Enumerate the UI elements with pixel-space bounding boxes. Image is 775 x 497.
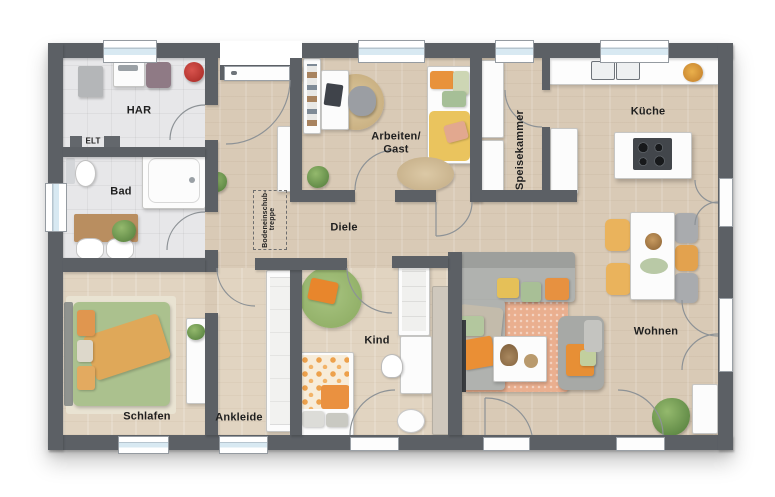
window-ankleide [219, 436, 268, 454]
table-centerpiece [645, 233, 662, 250]
label-ankleide: Ankleide [215, 412, 262, 425]
pillow [430, 71, 455, 89]
kind-shelf [398, 264, 430, 336]
shelf-books [307, 64, 317, 126]
laundry-basket [146, 62, 171, 88]
label-arbeiten-line2: Gast [371, 143, 420, 156]
pillow [326, 413, 348, 427]
door-handle [231, 71, 237, 75]
terrace-door-kind [350, 437, 399, 451]
kind-side-table [397, 409, 425, 433]
wall-speisekammer-kueche-a [542, 58, 550, 90]
window-schlafen [118, 436, 169, 454]
window-speisekammer [495, 40, 534, 63]
dining-chair-orange [606, 263, 631, 295]
wall-har-bad [63, 147, 205, 157]
wall-speisekammer-south [472, 190, 577, 202]
dining-chair-gray [674, 213, 698, 243]
wall-har-right-b [205, 140, 218, 212]
label-loft-line2: treppe [269, 190, 276, 248]
office-chair [348, 86, 376, 116]
toilet-tank [66, 158, 75, 184]
elt-panel-left [70, 136, 82, 147]
sink-left [76, 238, 104, 260]
living-sideboard [692, 384, 718, 434]
guest-bed [427, 66, 472, 164]
label-wohnen: Wohnen [634, 326, 678, 339]
french-door-wohnen [719, 298, 733, 372]
window-arbeiten-gast [358, 40, 425, 63]
french-door-essbereich [719, 178, 733, 227]
wall-arbeiten-south-b [395, 190, 436, 202]
elt-panel-right [104, 136, 120, 147]
kind-desk [400, 336, 432, 394]
wall-bad-schlafen [63, 258, 205, 272]
washer-panel [118, 65, 138, 71]
laptop [324, 83, 344, 107]
table-greenery [640, 258, 668, 274]
label-schlafen: Schlafen [123, 411, 170, 424]
pillow [77, 310, 95, 336]
office-shelf [303, 58, 321, 134]
wall-ankleide-kind [290, 258, 302, 435]
label-arbeiten-gast: Arbeiten/ Gast [371, 130, 420, 155]
kitchen-tall-cabinet [550, 128, 578, 194]
har-cabinet [78, 66, 103, 97]
label-speisekammer: Speisekammer [514, 110, 526, 190]
label-loft-lines: Bodeneinschub- treppe [262, 190, 276, 248]
washing-machine [113, 60, 145, 87]
dining-chair-orange [605, 219, 630, 251]
front-door [224, 66, 290, 81]
dining-chair-gray [674, 273, 698, 303]
sofa-back [455, 252, 575, 268]
pillow [302, 411, 324, 427]
floor-plan-canvas: HAR ELT Bad Schlafen Ankleide Kind Diele… [0, 0, 775, 497]
vacuum-robot [184, 62, 204, 82]
pillow [521, 282, 541, 302]
wall-diele-arbeiten [290, 58, 302, 190]
label-har: HAR [127, 105, 151, 118]
shelf-compartments [402, 269, 426, 331]
wall-bad-right-c [205, 250, 218, 272]
slipper-rug [397, 157, 454, 191]
kind-chair [381, 354, 403, 378]
dining-chair-orange [675, 245, 698, 271]
armchair-blanket [584, 320, 602, 352]
label-elt: ELT [85, 136, 100, 145]
kind-blanket [321, 385, 349, 409]
wardrobe-shelves [270, 277, 290, 425]
label-arbeiten-line1: Arbeiten/ [371, 130, 420, 143]
label-kind: Kind [364, 335, 389, 348]
wall-outer-left [48, 43, 63, 450]
kitchen-sink-right [616, 61, 640, 80]
wall-diele-south-b [392, 256, 448, 268]
pillow [442, 91, 466, 107]
wall-kind-wohnen [448, 252, 462, 435]
bathtub [142, 152, 206, 209]
label-loft-hatch: Bodeneinschub- treppe [262, 190, 276, 248]
dried-plant-vase [500, 344, 518, 366]
terrace-door-wohnen-west [483, 437, 530, 451]
label-loft-line1: Bodeneinschub- [262, 190, 269, 248]
table-tray [524, 354, 538, 368]
window-bad [45, 183, 67, 232]
wall-speisekammer-kueche-b [542, 127, 550, 192]
cooktop [633, 138, 672, 170]
label-kueche: Küche [631, 106, 666, 119]
kitchen-sink-left [591, 61, 615, 80]
window-kueche [600, 40, 669, 63]
wall-har-right-a [205, 58, 218, 105]
pillow [580, 350, 596, 366]
terrace-door-wohnen-east [616, 437, 665, 451]
fruit-bowl [683, 63, 703, 82]
wall-arbeiten-south-a [290, 190, 355, 202]
wall-arbeiten-speisekammer [470, 58, 482, 202]
wall-diele-south-a [255, 258, 347, 270]
wall-outer-right [718, 43, 733, 450]
label-bad: Bad [110, 186, 131, 199]
pillow [77, 366, 95, 390]
pillow [497, 278, 519, 298]
bed-headboard [64, 302, 73, 406]
kind-bed [297, 352, 354, 436]
bathtub-faucet [189, 177, 195, 183]
pillow [545, 278, 569, 300]
toilet-bowl [75, 160, 96, 187]
dining-table [630, 212, 675, 300]
pillow [77, 340, 93, 362]
label-diele: Diele [330, 222, 357, 235]
window-har [103, 40, 157, 63]
